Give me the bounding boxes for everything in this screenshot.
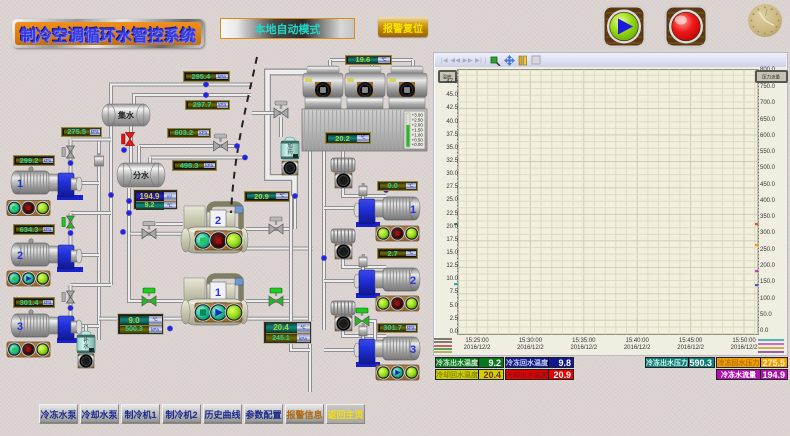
- svg-text:+3.00: +3.00: [412, 112, 424, 117]
- svg-text:+1.50: +1.50: [412, 127, 424, 132]
- svg-text:药: 药: [287, 148, 293, 156]
- svg-text:+1.00: +1.00: [412, 132, 424, 137]
- svg-text:2: 2: [17, 250, 23, 262]
- svg-text:集水: 集水: [117, 110, 135, 120]
- svg-text:3: 3: [410, 344, 416, 356]
- svg-text:3: 3: [17, 321, 23, 333]
- svg-text:分水: 分水: [133, 170, 150, 180]
- svg-text:1: 1: [215, 287, 221, 299]
- svg-text:1: 1: [17, 178, 23, 190]
- svg-text:补: 补: [83, 336, 89, 344]
- svg-text:2: 2: [215, 215, 221, 227]
- svg-text:1: 1: [410, 204, 416, 216]
- svg-text:+2.00: +2.00: [412, 122, 424, 127]
- svg-text:+0.00: +0.00: [412, 142, 424, 147]
- svg-text:2: 2: [410, 275, 416, 287]
- svg-text:+2.50: +2.50: [412, 117, 424, 122]
- svg-text:加: 加: [287, 142, 293, 150]
- svg-text:+0.50: +0.50: [412, 137, 424, 142]
- svg-text:水: 水: [83, 342, 89, 350]
